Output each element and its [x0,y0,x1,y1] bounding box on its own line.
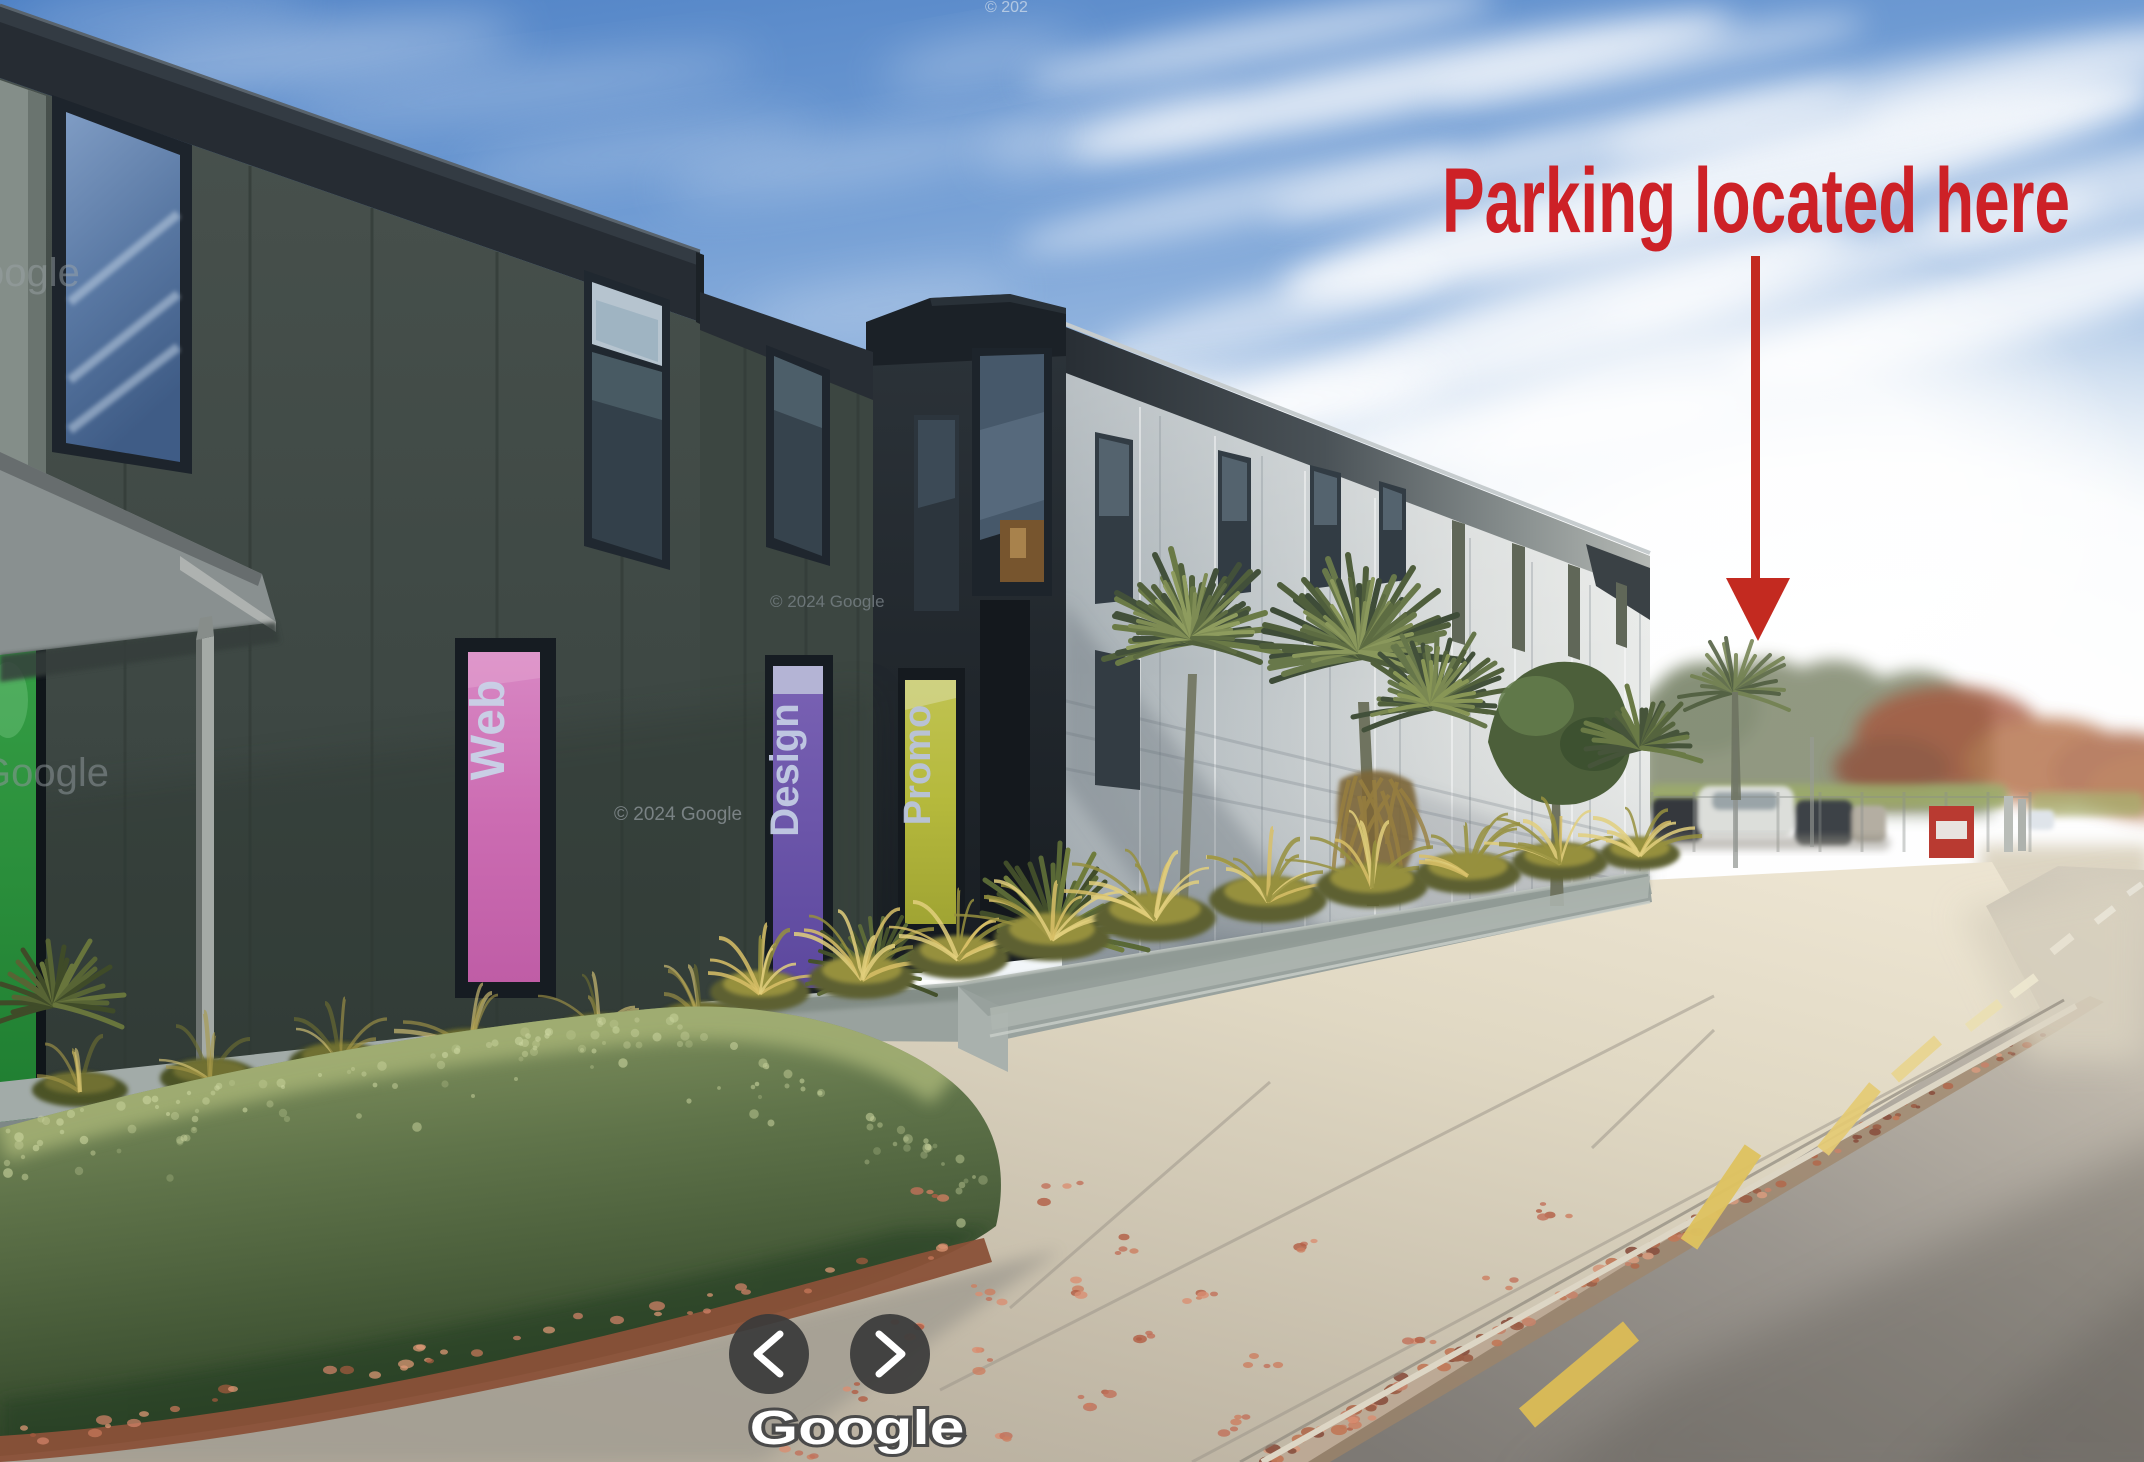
svg-text:Parking located here: Parking located here [1442,150,2070,252]
svg-text:Google: Google [0,751,109,795]
svg-text:© 202: © 202 [985,0,1028,16]
svg-text:© 2024 Google: © 2024 Google [614,804,742,825]
svg-text:© 2024 Google: © 2024 Google [770,592,885,611]
svg-text:oogle: oogle [0,251,80,295]
svg-text:Promo: Promo [897,705,939,825]
svg-text:Design: Design [763,703,807,836]
svg-text:Web: Web [462,680,515,780]
svg-text:Google: Google [750,1401,965,1454]
